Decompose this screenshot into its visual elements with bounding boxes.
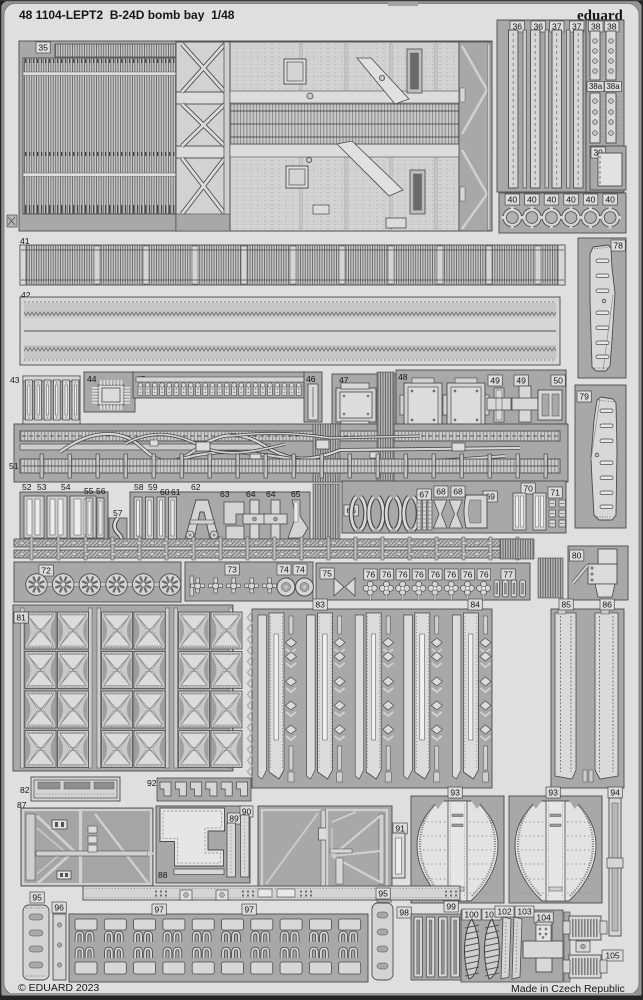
svg-text:103: 103 — [517, 907, 532, 917]
svg-text:55: 55 — [84, 486, 94, 496]
svg-text:74: 74 — [295, 565, 305, 575]
svg-text:49: 49 — [516, 376, 526, 386]
svg-text:96: 96 — [54, 903, 64, 913]
svg-text:74: 74 — [279, 565, 289, 575]
svg-text:49: 49 — [490, 376, 500, 386]
svg-text:93: 93 — [450, 788, 460, 798]
svg-text:104: 104 — [536, 913, 551, 923]
svg-text:48: 48 — [398, 372, 408, 382]
svg-text:46: 46 — [306, 374, 316, 384]
svg-text:68: 68 — [436, 487, 446, 497]
svg-text:72: 72 — [41, 566, 51, 576]
svg-text:59: 59 — [148, 482, 158, 492]
svg-text:64: 64 — [246, 489, 256, 499]
svg-text:84: 84 — [470, 600, 480, 610]
svg-text:43: 43 — [10, 375, 20, 385]
svg-text:94: 94 — [610, 788, 620, 798]
svg-text:77: 77 — [503, 570, 513, 580]
svg-text:73: 73 — [227, 565, 237, 575]
svg-text:97: 97 — [154, 905, 164, 915]
svg-text:75: 75 — [322, 569, 332, 579]
svg-text:68: 68 — [453, 487, 463, 497]
svg-text:67: 67 — [419, 490, 429, 500]
svg-text:89: 89 — [229, 814, 239, 824]
svg-text:80: 80 — [572, 551, 582, 561]
svg-text:64: 64 — [266, 489, 276, 499]
svg-text:93: 93 — [548, 788, 558, 798]
svg-text:83: 83 — [315, 600, 325, 610]
svg-text:97: 97 — [244, 905, 254, 915]
svg-text:38: 38 — [607, 22, 617, 32]
svg-text:40: 40 — [566, 195, 576, 205]
svg-text:56: 56 — [96, 486, 106, 496]
svg-text:35: 35 — [38, 43, 48, 53]
svg-text:44: 44 — [87, 374, 97, 384]
svg-text:91: 91 — [395, 824, 405, 834]
svg-text:76: 76 — [447, 570, 457, 580]
svg-text:99: 99 — [446, 902, 456, 912]
svg-text:© EDUARD 2023: © EDUARD 2023 — [18, 982, 99, 994]
svg-text:40: 40 — [586, 195, 596, 205]
svg-text:79: 79 — [579, 392, 589, 402]
svg-text:85: 85 — [561, 600, 571, 610]
svg-text:76: 76 — [398, 570, 408, 580]
svg-text:63: 63 — [220, 489, 230, 499]
svg-text:62: 62 — [191, 482, 201, 492]
svg-text:92: 92 — [147, 778, 157, 788]
svg-text:95: 95 — [378, 889, 388, 899]
svg-text:41: 41 — [20, 236, 30, 246]
svg-text:61: 61 — [171, 487, 181, 497]
svg-text:51: 51 — [9, 461, 19, 471]
svg-text:78: 78 — [613, 241, 623, 251]
svg-text:76: 76 — [366, 570, 376, 580]
svg-text:76: 76 — [430, 570, 440, 580]
svg-text:76: 76 — [414, 570, 424, 580]
svg-text:100: 100 — [464, 910, 479, 920]
svg-text:86: 86 — [602, 600, 612, 610]
svg-text:57: 57 — [113, 508, 123, 518]
svg-text:38: 38 — [591, 22, 601, 32]
svg-text:76: 76 — [479, 570, 489, 580]
svg-text:50: 50 — [553, 376, 563, 386]
svg-text:102: 102 — [497, 907, 512, 917]
svg-text:60: 60 — [160, 487, 170, 497]
svg-text:82: 82 — [20, 785, 30, 795]
svg-text:70: 70 — [523, 484, 533, 494]
svg-text:52: 52 — [22, 482, 32, 492]
svg-text:40: 40 — [547, 195, 557, 205]
svg-text:53: 53 — [37, 482, 47, 492]
svg-text:88: 88 — [158, 870, 168, 880]
svg-text:65: 65 — [291, 489, 301, 499]
svg-text:58: 58 — [134, 482, 144, 492]
svg-text:40: 40 — [508, 195, 518, 205]
svg-text:38a: 38a — [606, 82, 620, 91]
svg-text:71: 71 — [550, 488, 560, 498]
svg-text:40: 40 — [605, 195, 615, 205]
svg-text:76: 76 — [382, 570, 392, 580]
svg-text:48 1104-LEPT2 B-24D bomb bay: 48 1104-LEPT2 B-24D bomb bay 1/48 — [19, 8, 235, 22]
svg-text:95: 95 — [32, 893, 42, 903]
svg-text:54: 54 — [61, 482, 71, 492]
svg-text:40: 40 — [527, 195, 537, 205]
svg-text:76: 76 — [463, 570, 473, 580]
svg-text:105: 105 — [605, 951, 620, 961]
svg-text:38a: 38a — [589, 82, 603, 91]
svg-text:98: 98 — [399, 908, 409, 918]
svg-text:81: 81 — [16, 613, 26, 623]
